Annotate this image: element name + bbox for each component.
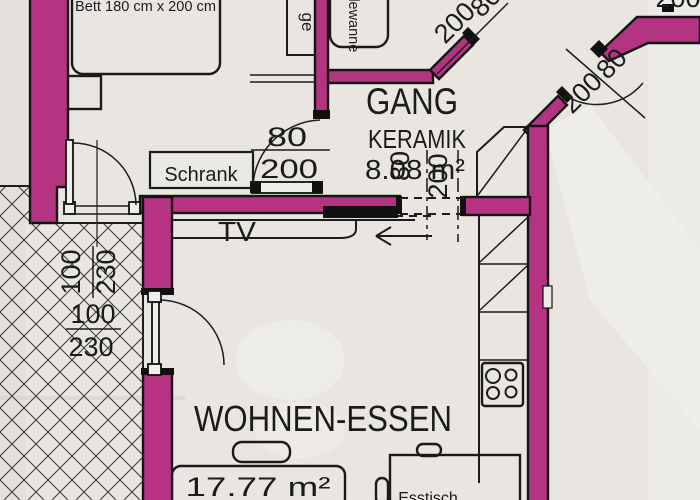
dim-den: 230 [91, 249, 121, 294]
floor-plan: 80 200 80 200 100 230 100 230 80 200 80 … [0, 0, 700, 500]
floor-plan-svg: 80 200 80 200 100 230 100 230 80 200 80 … [0, 0, 700, 500]
wall-living-west-upper [143, 197, 172, 293]
living-area-label: 17.77 m² [186, 472, 331, 500]
room-label-wohnen: WOHNEN-ESSEN [194, 398, 452, 439]
dim-edge-partial: 200 [655, 0, 700, 13]
dim-den: 230 [68, 332, 113, 362]
gang-finish-label: KERAMIK [368, 124, 467, 154]
gang-area-label: 8.08 m² [365, 154, 465, 185]
wall-living-west-lower [143, 370, 172, 500]
wall-right [528, 126, 548, 500]
dim-num: 80 [267, 122, 307, 152]
shelf-label: ge [298, 13, 317, 32]
bathtub-label: Badewanne [345, 0, 361, 52]
wardrobe-label: Schrank [164, 164, 238, 186]
dim-den: 200 [260, 154, 318, 184]
dim-num: 100 [56, 249, 86, 294]
tv-label: TV [218, 216, 256, 247]
wall-kitchen-stub [463, 197, 530, 215]
wall-marker [543, 286, 552, 308]
dim-num: 100 [70, 299, 115, 329]
dining-table-label: Esstisch [398, 490, 458, 500]
room-label-gang: GANG [366, 81, 458, 122]
bed-label: Bett 180 cm x 200 cm [75, 0, 216, 15]
